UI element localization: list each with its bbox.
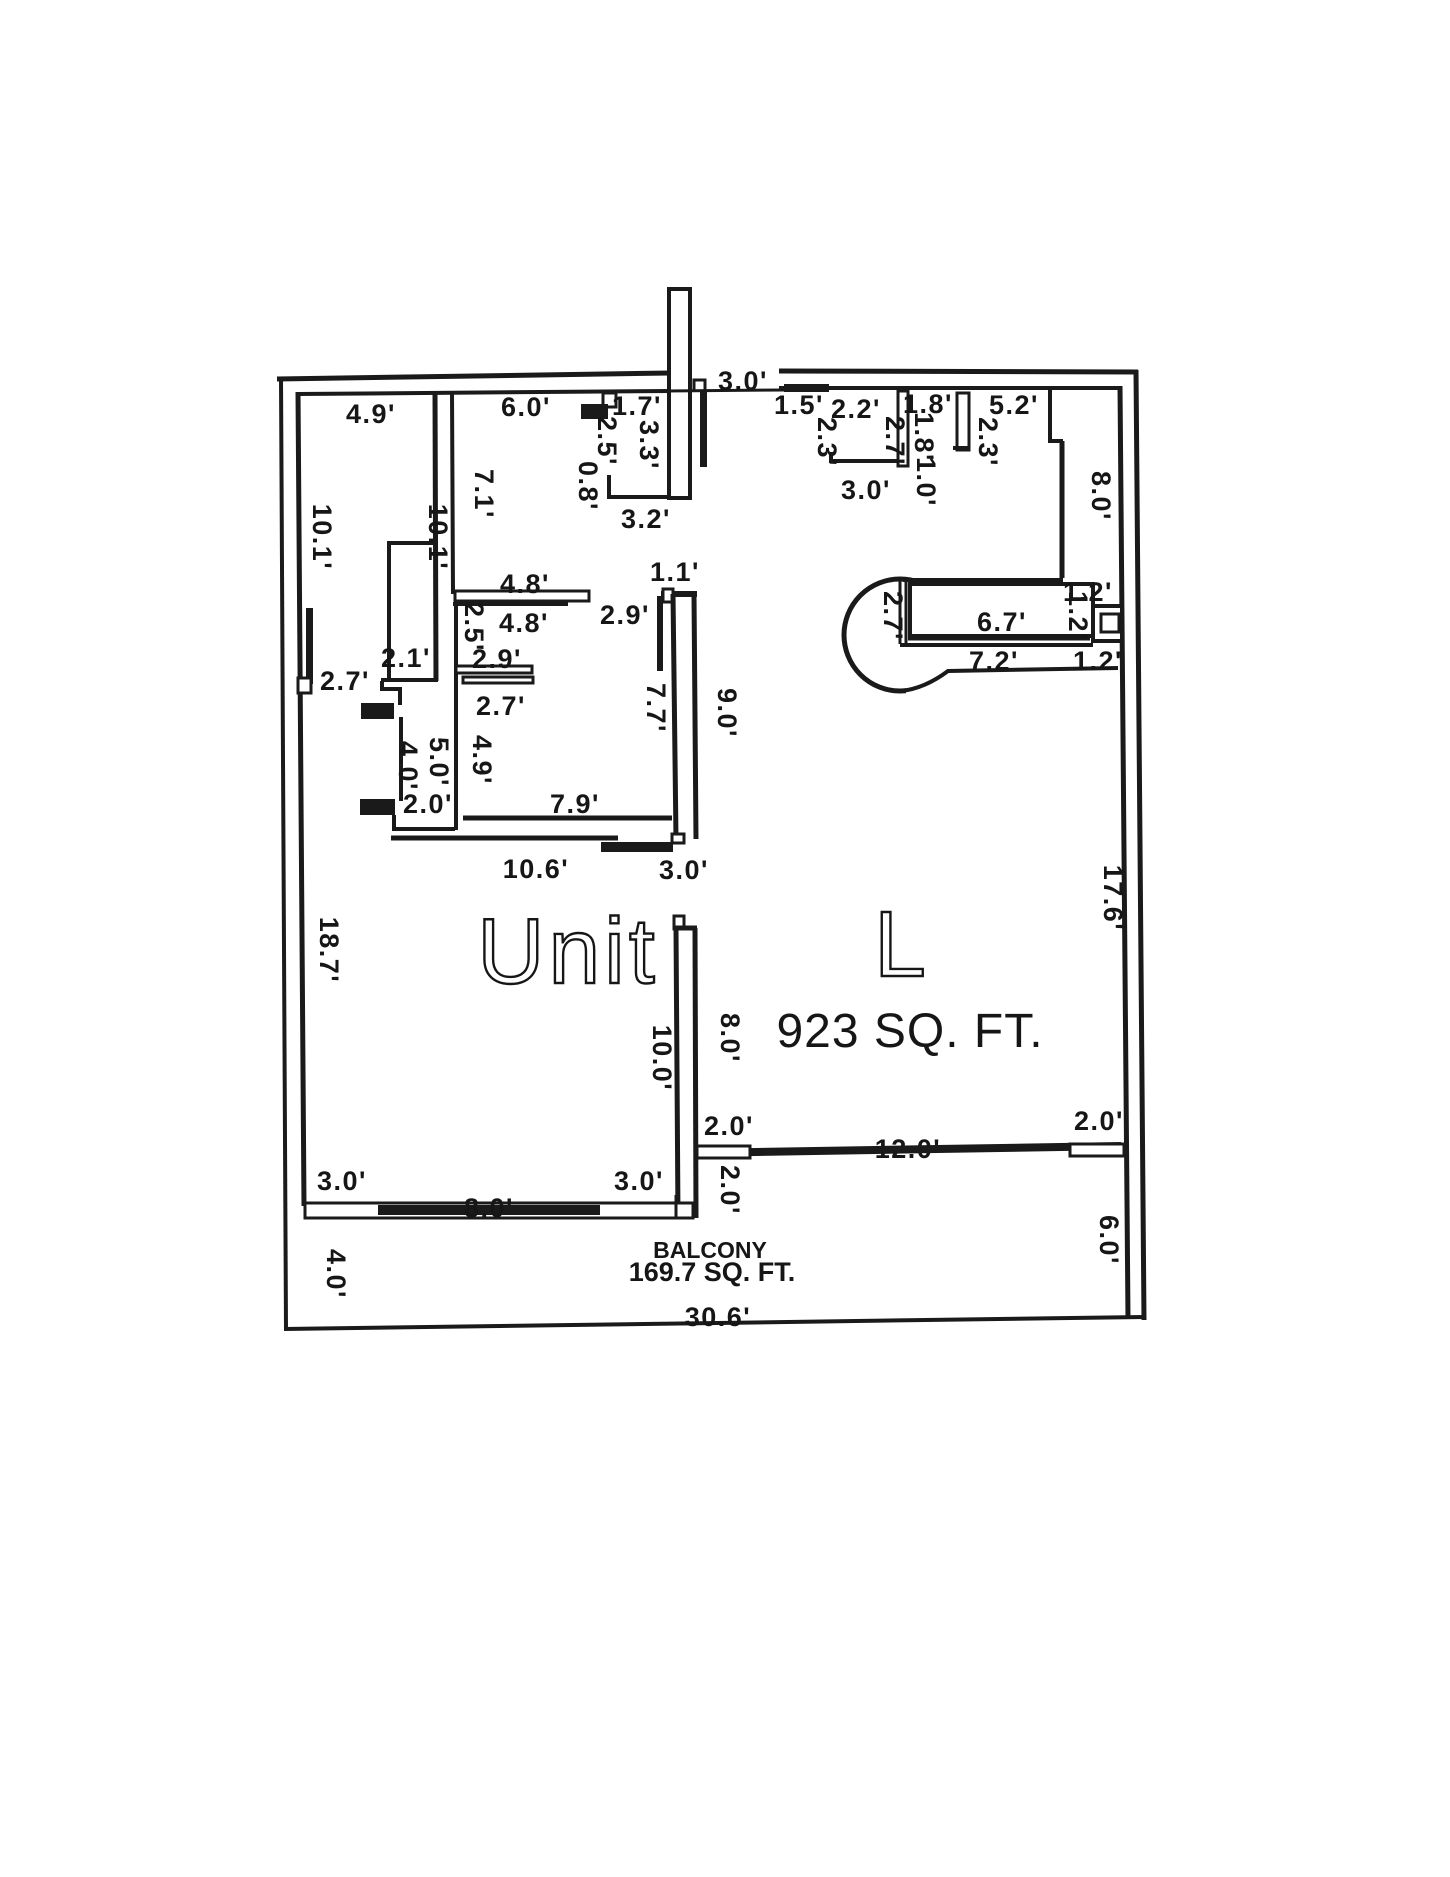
svg-text:L: L	[874, 892, 930, 996]
svg-text:2.7': 2.7'	[476, 691, 526, 721]
svg-text:3.0': 3.0'	[317, 1166, 367, 1196]
svg-text:7.7': 7.7'	[641, 683, 671, 733]
svg-text:1.2': 1.2'	[1073, 646, 1123, 676]
svg-text:9.0': 9.0'	[712, 688, 742, 738]
svg-text:7.2': 7.2'	[969, 646, 1019, 676]
svg-text:4.9': 4.9'	[467, 735, 497, 785]
svg-text:169.7 SQ. FT.: 169.7 SQ. FT.	[629, 1257, 796, 1287]
svg-text:4.8': 4.8'	[499, 608, 549, 638]
svg-text:1.0': 1.0'	[911, 457, 941, 507]
svg-text:2.9': 2.9'	[600, 600, 650, 630]
svg-text:7.1': 7.1'	[469, 469, 499, 519]
svg-text:2.3': 2.3'	[812, 417, 842, 467]
svg-text:3.0': 3.0'	[841, 475, 891, 505]
svg-text:8.0': 8.0'	[715, 1013, 745, 1063]
svg-text:2.3': 2.3'	[973, 417, 1003, 467]
svg-text:2.5': 2.5'	[459, 602, 489, 652]
svg-text:4.8': 4.8'	[500, 569, 550, 599]
svg-text:3.0': 3.0'	[718, 366, 768, 396]
svg-text:17.6': 17.6'	[1098, 865, 1128, 931]
svg-text:2.0': 2.0'	[715, 1165, 745, 1215]
svg-text:6.0': 6.0'	[501, 392, 551, 422]
svg-text:10.6': 10.6'	[503, 854, 569, 884]
svg-text:3.2': 3.2'	[621, 504, 671, 534]
svg-text:2.7': 2.7'	[320, 666, 370, 696]
svg-text:2.7': 2.7'	[878, 591, 908, 641]
svg-text:923 SQ. FT.: 923 SQ. FT.	[776, 1005, 1043, 1058]
svg-text:Unit: Unit	[477, 899, 658, 1003]
svg-text:2.7': 2.7'	[880, 416, 910, 466]
svg-text:3.0': 3.0'	[659, 855, 709, 885]
svg-text:2.5': 2.5'	[592, 416, 622, 466]
svg-text:4.9': 4.9'	[346, 399, 396, 429]
svg-text:2.1': 2.1'	[381, 643, 431, 673]
svg-text:2.0': 2.0'	[403, 789, 453, 819]
svg-text:3.3': 3.3'	[634, 420, 664, 470]
svg-text:2.0': 2.0'	[1074, 1106, 1124, 1136]
svg-text:10.1': 10.1'	[423, 504, 453, 570]
svg-text:3.0': 3.0'	[614, 1166, 664, 1196]
svg-text:1.8': 1.8'	[909, 412, 939, 462]
svg-text:5.2': 5.2'	[989, 390, 1039, 420]
svg-text:10.0': 10.0'	[647, 1025, 677, 1091]
svg-text:8.0': 8.0'	[1086, 471, 1116, 521]
svg-text:30.6': 30.6'	[685, 1302, 751, 1332]
svg-text:18.7': 18.7'	[314, 917, 344, 983]
svg-text:6.0': 6.0'	[1094, 1215, 1124, 1265]
svg-text:10.1': 10.1'	[307, 504, 337, 570]
svg-text:2.0': 2.0'	[704, 1111, 754, 1141]
svg-text:1.2': 1.2'	[1063, 591, 1093, 641]
svg-text:5.0': 5.0'	[424, 737, 454, 787]
svg-text:1.5': 1.5'	[774, 390, 824, 420]
svg-text:1.1': 1.1'	[650, 557, 700, 587]
svg-text:6.7': 6.7'	[977, 607, 1027, 637]
svg-text:0.8': 0.8'	[573, 461, 603, 511]
svg-text:8.0': 8.0'	[464, 1193, 514, 1223]
svg-text:7.9': 7.9'	[550, 789, 600, 819]
svg-text:4.0': 4.0'	[393, 741, 423, 791]
svg-text:4.0': 4.0'	[321, 1249, 351, 1299]
